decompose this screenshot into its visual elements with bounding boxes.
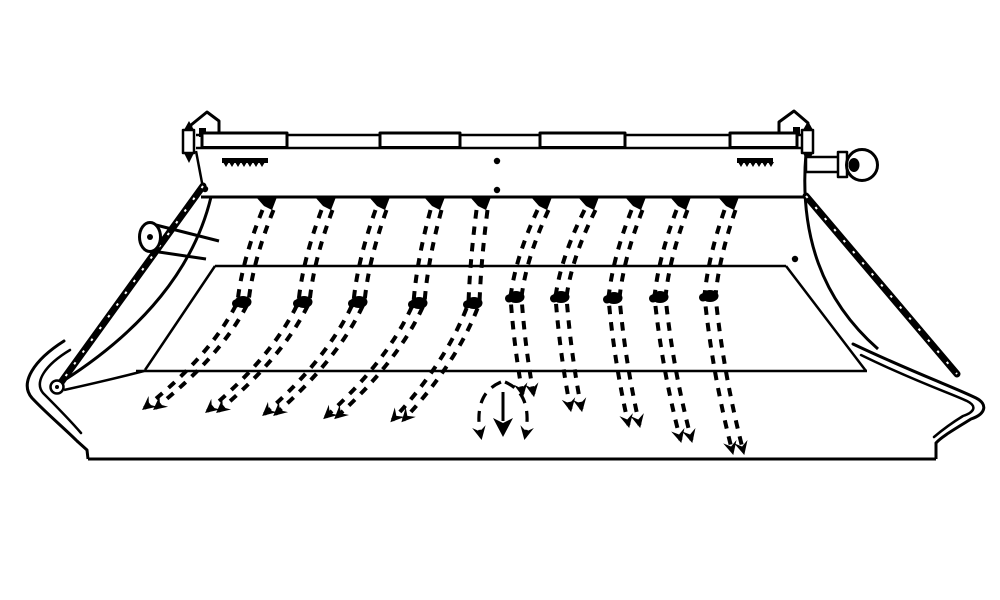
left-pivot-bolt-center xyxy=(55,385,59,389)
rivet-dot xyxy=(494,158,500,164)
tine-pivot-dot-lobe xyxy=(603,296,611,304)
left-side-sheet xyxy=(27,186,211,459)
crossbar-segment xyxy=(730,133,797,148)
tine-left xyxy=(393,197,492,420)
tine-right xyxy=(505,197,552,394)
crank-knob xyxy=(806,150,878,181)
crossbar-segment xyxy=(540,133,625,148)
tine-right xyxy=(603,197,646,425)
tine-pivot-dot-lobe xyxy=(232,300,240,308)
tine-prong xyxy=(567,210,596,409)
tine-right xyxy=(550,197,599,409)
tine-prong xyxy=(337,210,442,417)
right-sheet-curve xyxy=(805,153,878,349)
tine-pivot-dot-lobe xyxy=(348,300,356,308)
tine-mount-wedge xyxy=(470,197,491,210)
tine-mount-wedge xyxy=(369,197,390,210)
tine-field xyxy=(145,197,744,452)
tine-mount-wedge xyxy=(625,197,646,210)
crossbar-segment xyxy=(202,133,287,148)
knob-shaft xyxy=(806,157,839,172)
tine-prong xyxy=(666,210,692,440)
cylinder-hub-dot xyxy=(147,234,153,240)
tine-mount-wedge xyxy=(256,197,277,210)
tine-prong xyxy=(404,210,488,420)
tine-pivot-dot-lobe xyxy=(699,294,707,302)
tine-mount-wedge xyxy=(718,197,739,210)
tine-pivot-dot-lobe xyxy=(293,300,301,308)
tine-left xyxy=(326,197,446,417)
tine-prong xyxy=(393,210,477,420)
left-skid-step xyxy=(77,441,88,459)
crossbar-segment xyxy=(380,133,460,148)
tine-pivot-dot-lobe xyxy=(463,301,471,309)
crossbar-left-spur-down xyxy=(184,153,194,163)
cylinder-bottom-line xyxy=(152,251,206,259)
crossbar xyxy=(183,121,813,163)
tine-prong xyxy=(716,210,744,452)
tine-pivot-dot-lobe xyxy=(408,301,416,309)
right-side-sheet xyxy=(805,153,984,459)
rear-panel-left-edge xyxy=(196,151,203,188)
tine-prong xyxy=(609,210,632,425)
rivet-dot xyxy=(494,187,500,193)
tine-mount-wedge xyxy=(670,197,691,210)
knob-ball-highlight xyxy=(849,158,860,172)
figure-canvas xyxy=(0,0,1000,600)
pickup-header-drawing xyxy=(0,0,1000,600)
tine-mount-wedge xyxy=(424,197,445,210)
crossbar-left-end-cap xyxy=(183,130,194,153)
tine-pivot-dot-lobe xyxy=(505,295,513,303)
floor-apron xyxy=(136,266,867,371)
tine-right xyxy=(649,197,692,440)
tine-pivot-dot-lobe xyxy=(649,295,657,303)
tine-pivot-dot-lobe xyxy=(550,295,558,303)
tine-mount-wedge xyxy=(531,197,552,210)
floor-left-edge xyxy=(145,266,215,370)
tine-prong xyxy=(326,210,431,417)
left-riveted-edge xyxy=(57,186,203,388)
crossbar-right-end-cap xyxy=(802,130,813,153)
tine-prong xyxy=(522,210,549,394)
crossbar-right-spur-up xyxy=(803,121,813,130)
tine-left xyxy=(208,197,337,411)
flow-arch-left xyxy=(479,382,501,437)
tine-mount-wedge xyxy=(315,197,336,210)
right-skid-inner xyxy=(861,355,973,437)
tine-mount-wedge xyxy=(578,197,599,210)
tine-right xyxy=(699,197,744,452)
right-skid-outer xyxy=(853,344,984,443)
rivet-dot xyxy=(792,256,798,262)
rivet-dots xyxy=(202,158,798,262)
tine-prong xyxy=(219,210,333,411)
